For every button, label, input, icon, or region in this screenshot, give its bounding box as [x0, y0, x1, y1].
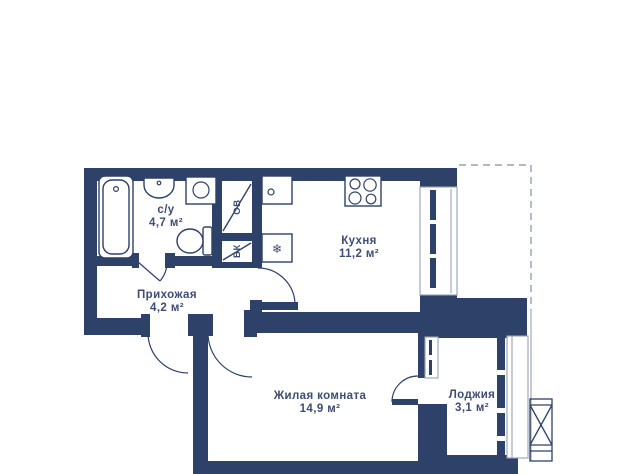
toilet-tank	[203, 227, 212, 255]
stove-burner-2	[364, 179, 376, 191]
stove-burner-3	[349, 192, 361, 204]
kitchen-door-leaf	[256, 302, 298, 310]
ladder-frame	[530, 399, 552, 461]
stove-burner-4	[366, 194, 376, 204]
loggia-window-frame-1	[429, 340, 432, 355]
room-label-hallway: Прихожая 4,2 м²	[117, 289, 217, 315]
living-room-door-arc	[208, 333, 252, 377]
fridge-snowflake-icon: ❄	[272, 242, 282, 256]
room-name-kitchen: Кухня	[309, 235, 409, 248]
kitchen-door-arc	[258, 268, 295, 305]
fire-ladder-icon	[530, 399, 552, 461]
wall-left	[84, 168, 97, 335]
wall-kitchen-right-top	[420, 168, 457, 187]
wall-bathroom-bottom-right	[165, 256, 218, 266]
doors	[138, 262, 418, 405]
room-name-living-room: Жилая комната	[250, 390, 390, 403]
kitchen-window-frame-2	[430, 224, 436, 254]
loggia-glazing-gap-1	[497, 370, 505, 375]
room-label-loggia: Лоджия 3,1 м²	[432, 389, 512, 415]
room-name-hallway: Прихожая	[117, 289, 217, 302]
room-area-living-room: 14,9 м²	[250, 403, 390, 416]
loggia-window-frame-2	[429, 360, 432, 375]
wall-bathroom-jamb-left	[132, 253, 139, 268]
room-name-loggia: Лоджия	[432, 389, 512, 402]
bath-sink-faucet	[157, 181, 161, 185]
washing-machine-drum	[193, 182, 209, 198]
bathroom-door-leaf	[138, 262, 160, 281]
shaft-label-heating: ОВ	[227, 192, 247, 222]
kitchen-sink-icon	[262, 176, 292, 204]
room-area-kitchen: 11,2 м²	[309, 248, 409, 261]
room-label-kitchen: Кухня 11,2 м²	[309, 235, 409, 261]
loggia-glazing-gap-3	[497, 436, 505, 441]
room-area-hallway: 4,2 м²	[117, 302, 217, 315]
bathtub-drain	[114, 187, 119, 192]
entrance-door-arc	[148, 333, 188, 373]
room-name-bathroom: с/у	[126, 204, 206, 217]
balcony-door-leaf	[392, 399, 418, 405]
wall-loggia-bottom	[418, 455, 518, 474]
wall-kitchen-right-bottom	[420, 295, 457, 315]
shaft-label-water: ВК	[227, 236, 247, 266]
kitchen-window-frame-3	[430, 258, 436, 288]
room-area-bathroom: 4,7 м²	[126, 217, 206, 230]
room-label-bathroom: с/у 4,7 м²	[126, 204, 206, 230]
wall-living-bottom	[193, 461, 430, 474]
wall-living-left	[193, 318, 208, 474]
balcony-door-arc	[392, 376, 418, 402]
toilet-bowl-icon	[177, 229, 203, 253]
stove-burner-1	[350, 179, 360, 189]
room-label-living-room: Жилая комната 14,9 м²	[250, 390, 390, 416]
room-area-loggia: 3,1 м²	[432, 402, 512, 415]
kitchen-window-frame-1	[430, 190, 436, 220]
wall-hallway-bottom	[84, 318, 148, 335]
floor-plan: ❄ с/у 4,7 м² Прихожая 4,2 м² Кухня 11,2 …	[0, 0, 640, 474]
kitchen-sink-drain	[268, 189, 274, 195]
wall-entrance-jamb-left	[141, 314, 150, 337]
